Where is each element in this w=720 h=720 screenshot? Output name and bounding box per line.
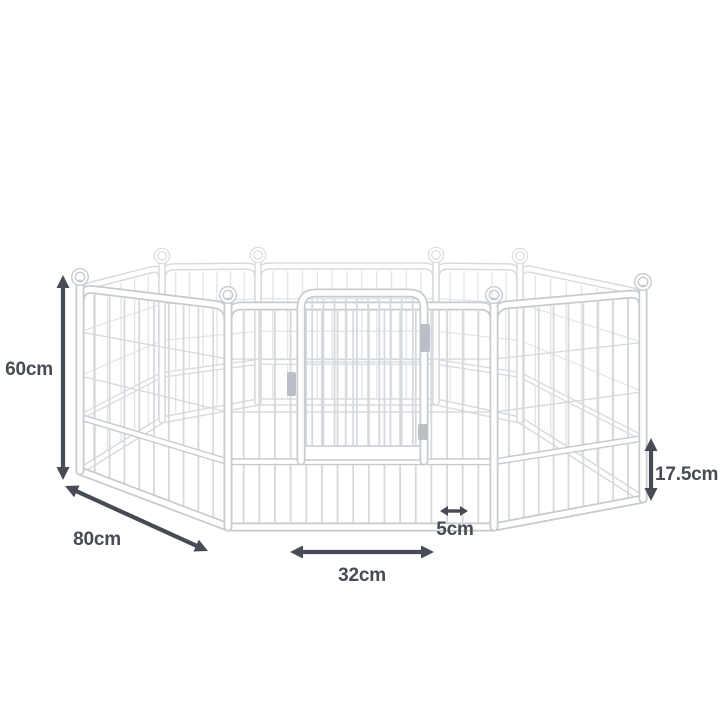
product-dimension-diagram: 60cm 80cm 32cm 5cm 17.5cm bbox=[0, 0, 720, 720]
door-hinge bbox=[287, 372, 296, 396]
door-latch bbox=[420, 324, 430, 352]
playpen-illustration bbox=[74, 249, 650, 530]
corner-post-se bbox=[488, 289, 501, 528]
door-bottom-rail bbox=[303, 446, 421, 460]
height-dimension-label: 60cm bbox=[5, 359, 53, 380]
door bbox=[287, 293, 430, 461]
height-dimension-arrow bbox=[57, 275, 70, 480]
corner-post-e bbox=[637, 276, 650, 500]
wire-gap-dimension-label: 5cm bbox=[436, 519, 473, 540]
door-width-dimension-label: 32cm bbox=[338, 565, 386, 586]
panel-width-dimension-label: 80cm bbox=[73, 529, 121, 550]
wire-gap-dimension-arrow bbox=[440, 506, 468, 516]
panel-back-center bbox=[258, 266, 436, 402]
door-width-dimension-arrow bbox=[290, 546, 434, 559]
bottom-height-dimension-label: 17.5cm bbox=[655, 464, 718, 485]
corner-post-w bbox=[74, 271, 87, 472]
panel-front bbox=[228, 306, 494, 527]
door-hinge-lower bbox=[418, 424, 428, 440]
playpen-diagram: 60cm 80cm 32cm 5cm 17.5cm bbox=[0, 0, 720, 720]
